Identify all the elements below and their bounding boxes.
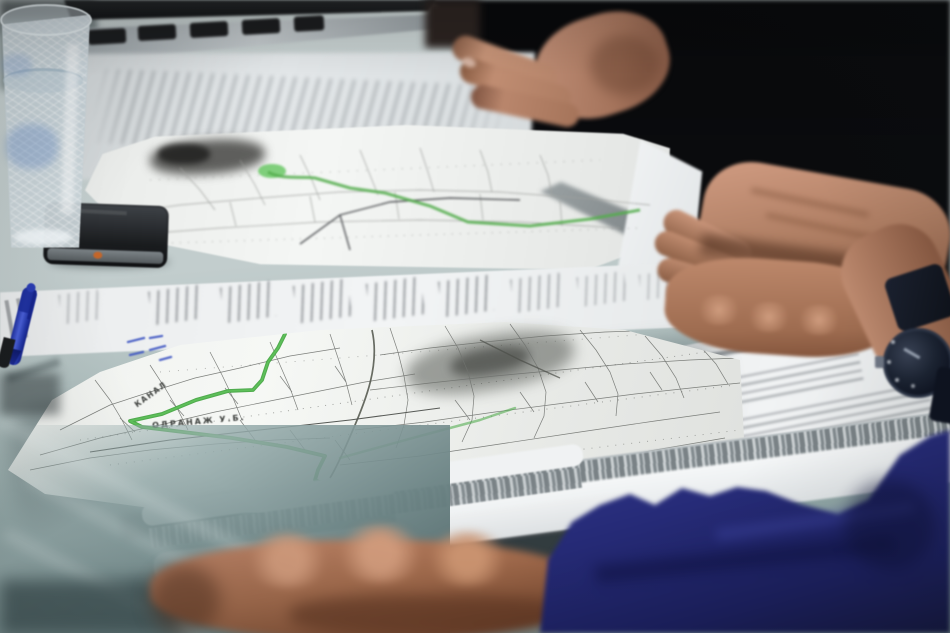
watch-crown xyxy=(875,356,884,368)
watch-tick xyxy=(891,340,895,344)
cup-base-glow xyxy=(14,229,72,245)
blue-handwriting xyxy=(118,328,198,373)
water-cup xyxy=(0,4,94,252)
knuckle xyxy=(245,533,330,588)
knuckle xyxy=(745,302,793,332)
sweater-sleeve xyxy=(515,420,950,633)
sleeve-fold-shadow xyxy=(845,480,935,570)
knuckle xyxy=(335,525,425,583)
watch-tick xyxy=(887,360,891,364)
wristwatch xyxy=(845,270,950,415)
fist-left-shadow xyxy=(150,565,220,633)
cup-rim xyxy=(0,4,92,36)
resting-hand-top xyxy=(440,10,670,125)
knuckle-shadow xyxy=(590,35,660,95)
photo-meeting-table: ОДРАНАЖ У.Б. КАНАЛ xyxy=(0,0,950,633)
watch-tick xyxy=(911,384,915,388)
cup-reflection-blue xyxy=(2,54,32,76)
cup-reflection-blue xyxy=(6,124,58,169)
watch-tick xyxy=(895,378,899,382)
knuckle xyxy=(795,305,843,335)
watch-strap xyxy=(883,262,950,333)
knuckle xyxy=(695,295,743,325)
knuckle xyxy=(425,531,510,586)
